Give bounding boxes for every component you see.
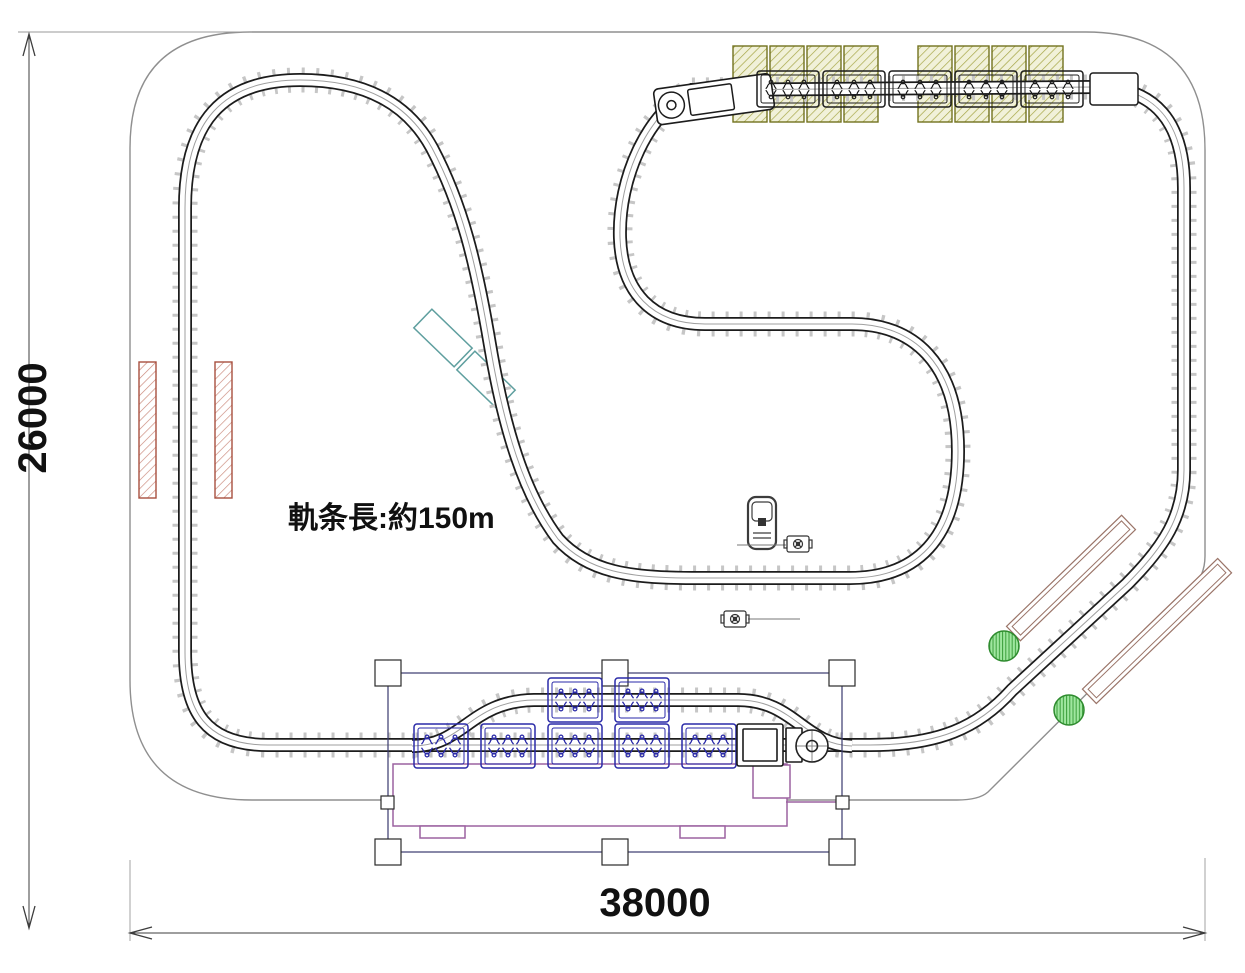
building-step (680, 826, 725, 838)
right-sheds (989, 515, 1232, 725)
tree (1054, 695, 1084, 725)
canopy-mid-marker (381, 796, 394, 809)
train-car-empty (1090, 73, 1138, 105)
building-room (753, 765, 790, 798)
building-step (420, 826, 465, 838)
dimension-horizontal: 38000 (130, 858, 1205, 941)
canopy-post (602, 839, 628, 865)
equipment-marker (721, 611, 749, 627)
locomotive-box (737, 724, 802, 766)
canopy-post (829, 839, 855, 865)
canopy-post (375, 660, 401, 686)
vehicle-detail (758, 518, 766, 526)
platform-left-west (139, 362, 156, 498)
track-ties (185, 80, 1184, 745)
canopy-mid-marker (836, 796, 849, 809)
platform-left-east (215, 362, 232, 498)
tree (989, 631, 1019, 661)
train-top (653, 71, 1138, 125)
canopy-post (375, 839, 401, 865)
turntable (796, 730, 828, 762)
dimension-height-value: 26000 (11, 362, 55, 473)
canopy-post (829, 660, 855, 686)
track-rails-gap (185, 80, 1184, 745)
main-track-loop (185, 80, 1184, 746)
shed (1082, 559, 1231, 704)
track-layout-plan: 軌条長:約150m 26000 38000 (0, 0, 1245, 973)
station-building (393, 764, 836, 838)
layout-drawing: 軌条長:約150m 26000 38000 (0, 0, 1245, 973)
rail-length-label: 軌条長:約150m (288, 502, 495, 535)
track-rails (185, 80, 1184, 745)
dimension-width-value: 38000 (599, 881, 710, 925)
equipment-marker (784, 536, 812, 552)
building-main (393, 764, 787, 826)
teal-structure (414, 309, 472, 367)
vehicle (748, 497, 776, 549)
track-centerline (185, 80, 1184, 745)
site-boundary (130, 32, 1205, 800)
